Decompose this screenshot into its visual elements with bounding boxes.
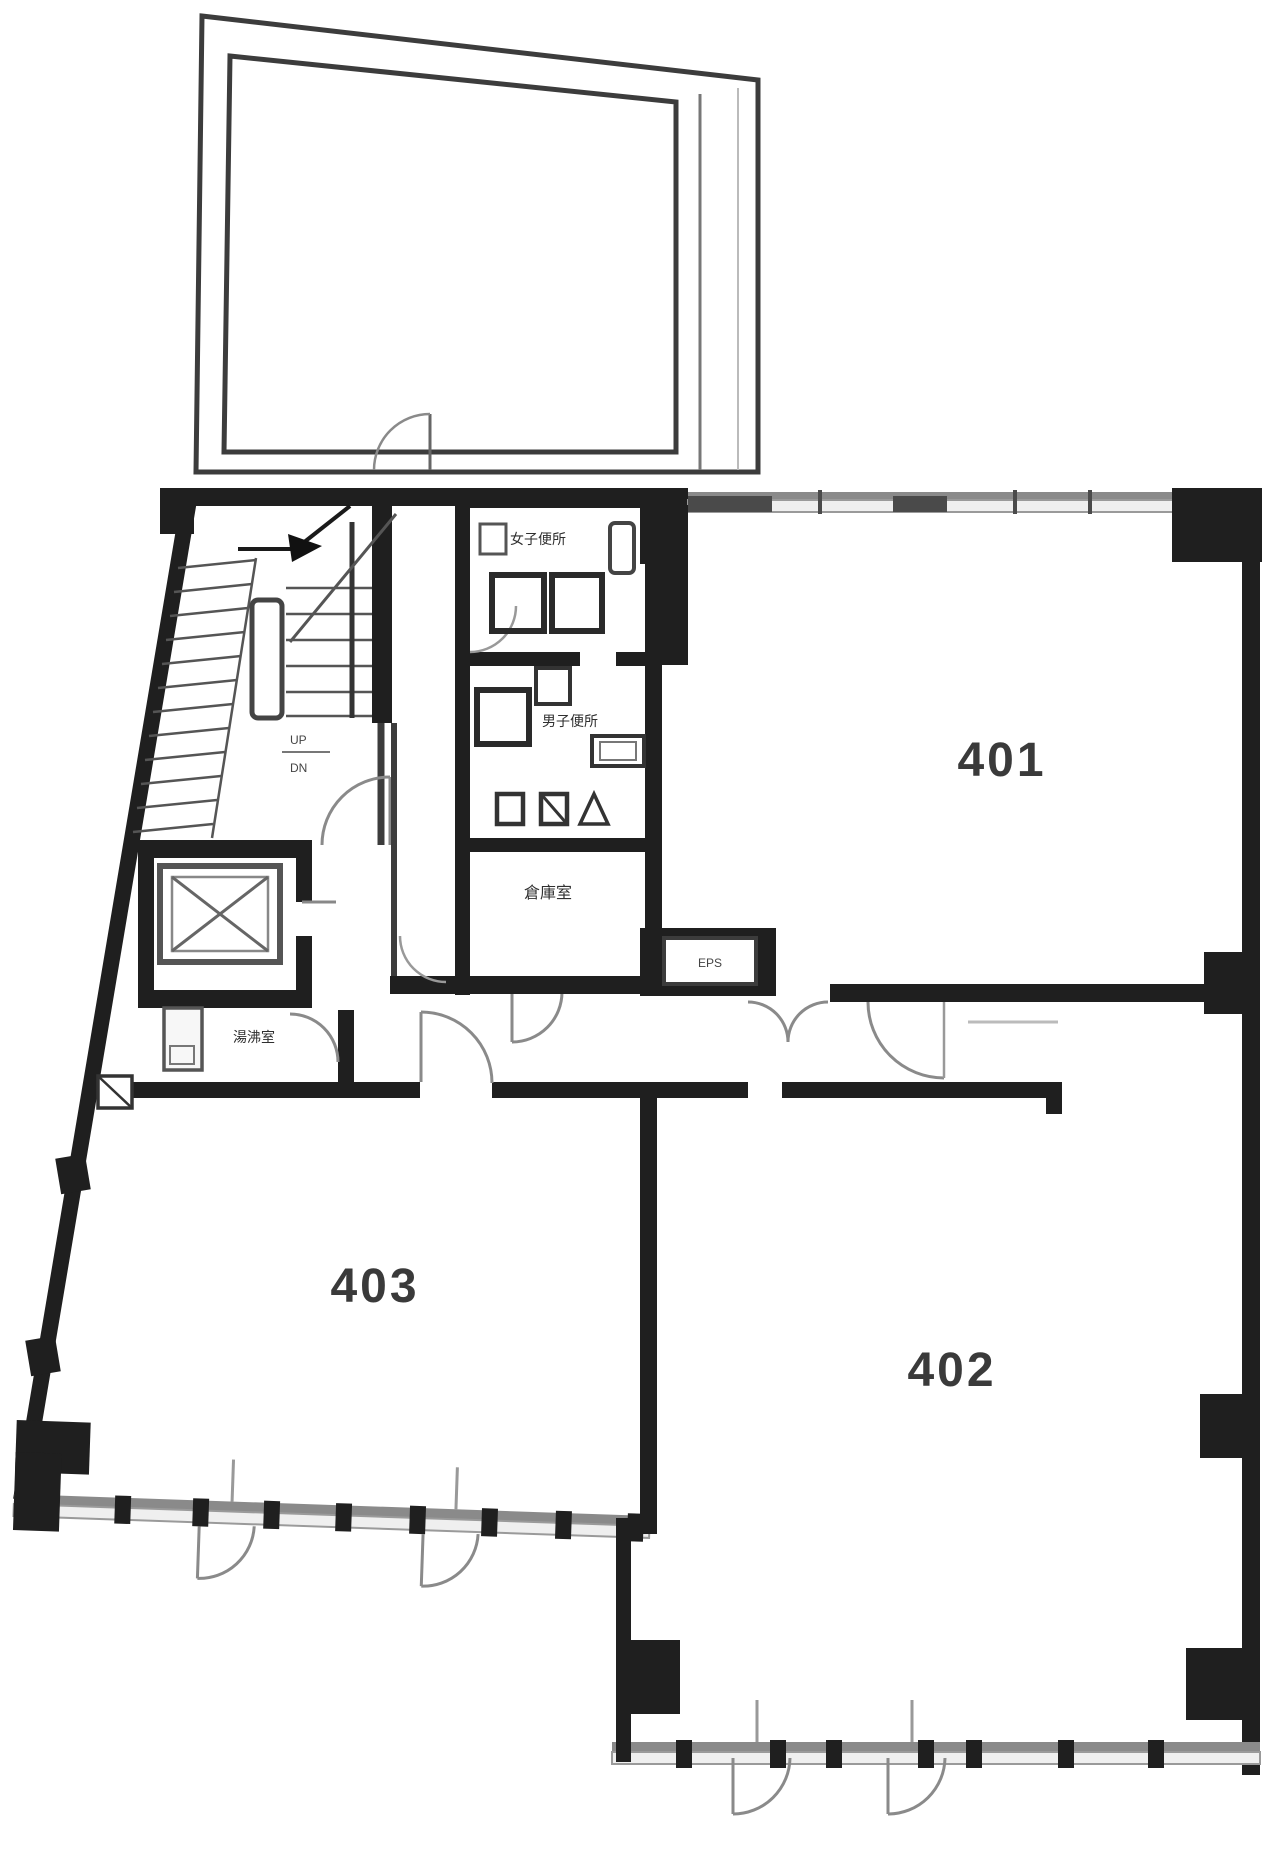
- mens-sink: [536, 668, 570, 704]
- eps-label: EPS: [698, 956, 722, 970]
- toilet-partition-1a: [455, 652, 580, 666]
- corridor-south-wall-east: [782, 1082, 1062, 1098]
- womens-toilet-label: 女子便所: [510, 531, 566, 547]
- door-403-south-arc-2: [421, 1532, 478, 1588]
- top-right-corner-column: [1172, 488, 1262, 562]
- wall-403-402-divider: [640, 1097, 657, 1525]
- wall-403-block-7: [555, 1511, 572, 1540]
- door-403-south-leaf-1: [232, 1460, 233, 1502]
- room-401-label: 401: [957, 734, 1046, 787]
- tread-line: [174, 584, 252, 592]
- toilet-block: 女子便所 男子便所 倉庫室: [390, 505, 688, 995]
- door-403-south-leaf-2: [456, 1467, 457, 1509]
- corridor-south-wall-west: [96, 1082, 420, 1098]
- mens-toilet-label: 男子便所: [542, 713, 598, 729]
- storage-door-arc: [512, 992, 562, 1042]
- column-402-southwest: [616, 1640, 680, 1714]
- top-wall-stairwell: [183, 488, 455, 506]
- tread-line: [133, 824, 213, 832]
- double-door-arc-right: [788, 1002, 828, 1042]
- right-wall-column-3: [1186, 1648, 1242, 1720]
- elevator-wall-top: [138, 840, 312, 858]
- tread-line: [141, 776, 221, 784]
- right-wall-column-2: [1200, 1394, 1242, 1458]
- left-wall-column-2: [25, 1336, 61, 1376]
- toilet-partition-2: [455, 838, 645, 852]
- elevator-wall-left: [138, 858, 154, 1008]
- toilet-east-wall-lower: [645, 665, 662, 930]
- door-402-south-arc-2: [888, 1758, 945, 1814]
- wall-402-block-1: [676, 1740, 692, 1768]
- kitchenette-east-wall: [338, 1010, 354, 1098]
- door-403-south-stem-1: [197, 1526, 199, 1578]
- wall-403-block-1: [114, 1495, 131, 1524]
- right-wall-column-1: [1204, 952, 1242, 1014]
- tread-line: [137, 800, 217, 808]
- wall-402-block-2: [770, 1740, 786, 1768]
- tread-line: [149, 728, 229, 736]
- wall-403-block-3: [263, 1501, 280, 1530]
- stair-left-flight-stringer: [212, 558, 256, 838]
- elevator: [138, 840, 336, 1008]
- bottom-wall-403: [12, 1420, 653, 1594]
- floor-plan-page: EPS: [0, 0, 1280, 1852]
- double-door-arc-left: [748, 1002, 788, 1042]
- room-403-door-arc: [421, 1012, 492, 1083]
- stair-direction-arrow-head: [288, 534, 322, 562]
- tread-line: [178, 560, 256, 568]
- wall-402-block-6: [1058, 1740, 1074, 1768]
- room-402-label: 402: [907, 1344, 996, 1397]
- wall-403-block-4: [335, 1503, 352, 1532]
- bottom-wall-402: [612, 1700, 1260, 1814]
- tread-line: [162, 656, 241, 664]
- wall-403-block-5: [409, 1506, 426, 1535]
- urinal-2-diagonal: [541, 794, 567, 824]
- stairwell: UP DN: [133, 498, 396, 845]
- corridor-wall-end-stub: [1046, 1082, 1062, 1114]
- wall-402-block-3: [826, 1740, 842, 1768]
- wall-402-block-4: [918, 1740, 934, 1768]
- elevator-wall-right-lower: [296, 936, 312, 1008]
- toilet-east-wall-upper: [645, 505, 688, 665]
- room-402-door-arc: [868, 1002, 944, 1078]
- tread-line: [145, 752, 225, 760]
- wall-403-block-6: [481, 1508, 498, 1537]
- wall-402-block-7: [1148, 1740, 1164, 1768]
- door-403-south-stem-2: [421, 1534, 423, 1586]
- room-401-south-wall: [830, 984, 1242, 1002]
- womens-toilet-fixture: [610, 523, 634, 573]
- womens-sink: [480, 524, 506, 554]
- toilet-partition-1b: [616, 652, 645, 666]
- floor-plan-drawing: EPS: [0, 0, 1280, 1852]
- stair-down-label: DN: [290, 761, 307, 775]
- divider-walls: [616, 1097, 680, 1762]
- top-left-corner-column: [160, 488, 194, 534]
- kitchenette-label: 湯沸室: [233, 1029, 275, 1045]
- corner-403-southwest-b: [13, 1452, 62, 1532]
- top-wall-dark-segment-2: [893, 496, 947, 512]
- wall-402-block-5: [966, 1740, 982, 1768]
- left-wall-column-1: [55, 1154, 91, 1194]
- elevator-wall-right-upper: [296, 858, 312, 902]
- mens-counter-inner: [600, 742, 636, 760]
- urinal-1: [497, 794, 523, 824]
- womens-stall-1: [492, 575, 544, 631]
- room-labels: 401 402 403: [330, 734, 1046, 1397]
- corridor-doors: [421, 992, 1058, 1083]
- kitchenette-door-arc: [290, 1014, 338, 1062]
- tread-line: [158, 680, 237, 688]
- room-403-label: 403: [330, 1260, 419, 1313]
- tread-line: [166, 632, 245, 640]
- service-door-arc: [400, 936, 446, 982]
- stair-treads-right-flight: [286, 588, 372, 716]
- tread-line: [153, 704, 233, 712]
- wall-403-block-2: [192, 1498, 209, 1527]
- stair-center-rail: [252, 600, 282, 718]
- toilet-west-wall: [455, 505, 470, 995]
- womens-stall-2: [552, 575, 602, 631]
- elevator-wall-bottom: [138, 990, 312, 1008]
- storage-label: 倉庫室: [524, 884, 572, 902]
- door-403-south-arc-1: [197, 1524, 254, 1580]
- corridor-south-wall-center: [492, 1082, 748, 1098]
- urinal-3-triangle: [580, 794, 608, 824]
- top-wall-dark-segment-1: [688, 496, 772, 512]
- tread-line: [170, 608, 248, 616]
- stair-up-label: UP: [290, 733, 307, 747]
- balcony-outline: [196, 16, 758, 472]
- right-wall: [1242, 560, 1260, 1775]
- mens-stall: [477, 690, 529, 744]
